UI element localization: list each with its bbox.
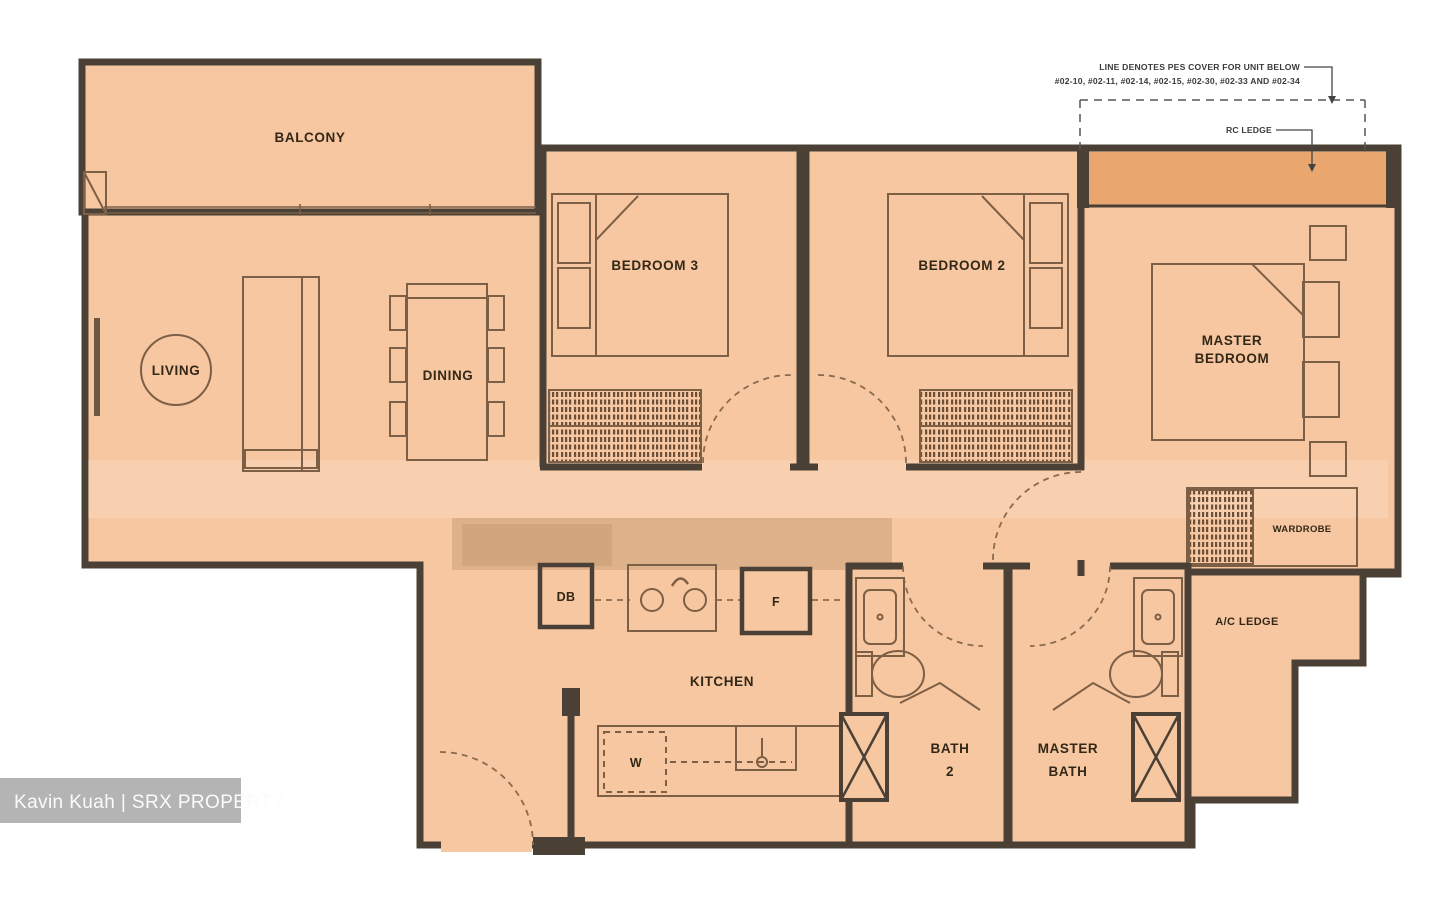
- pes-note-line2: #02-10, #02-11, #02-14, #02-15, #02-30, …: [1055, 76, 1300, 86]
- wardrobe-bedroom3: [549, 390, 701, 462]
- floor-plan-svg: LINE DENOTES PES COVER FOR UNIT BELOW #0…: [0, 0, 1440, 922]
- label-db: DB: [557, 590, 576, 604]
- label-kitchen: KITCHEN: [690, 674, 754, 689]
- label-bedroom2: BEDROOM 2: [918, 258, 1005, 273]
- label-dining: DINING: [423, 368, 474, 383]
- master-bath-shaft: [1133, 714, 1179, 800]
- entry-door-gap: [441, 838, 532, 852]
- living-window: [94, 318, 100, 416]
- rc-ledge-label: RC LEDGE: [1226, 125, 1272, 135]
- label-master-bedroom-1: MASTER: [1202, 333, 1263, 348]
- label-wardrobe: WARDROBE: [1273, 524, 1332, 535]
- floor-plan-page: LINE DENOTES PES COVER FOR UNIT BELOW #0…: [0, 0, 1440, 922]
- watermark: Kavin Kuah | SRX PROPERTY: [0, 778, 285, 823]
- bath2-shaft: [841, 714, 887, 800]
- label-ac-ledge: A/C LEDGE: [1215, 616, 1279, 628]
- label-master-bath-2: BATH: [1049, 764, 1088, 779]
- rc-ledge-band: [1085, 152, 1393, 206]
- label-balcony: BALCONY: [275, 130, 346, 145]
- pes-dashed-outline: [1080, 100, 1365, 150]
- label-living: LIVING: [152, 363, 201, 378]
- kitchen-counter-band-dark: [462, 524, 612, 566]
- wardrobe-bedroom2: [920, 390, 1072, 462]
- label-bedroom3: BEDROOM 3: [611, 258, 698, 273]
- label-bath2-1: BATH: [931, 741, 970, 756]
- floor-fills: [82, 62, 1398, 845]
- label-fridge: F: [772, 595, 780, 609]
- label-master-bedroom-2: BEDROOM: [1195, 351, 1270, 366]
- label-washer: W: [630, 756, 642, 770]
- pes-note-line1: LINE DENOTES PES COVER FOR UNIT BELOW: [1099, 62, 1300, 72]
- label-bath2-2: 2: [946, 764, 954, 779]
- watermark-text: Kavin Kuah | SRX PROPERTY: [14, 792, 285, 813]
- label-master-bath-1: MASTER: [1038, 741, 1099, 756]
